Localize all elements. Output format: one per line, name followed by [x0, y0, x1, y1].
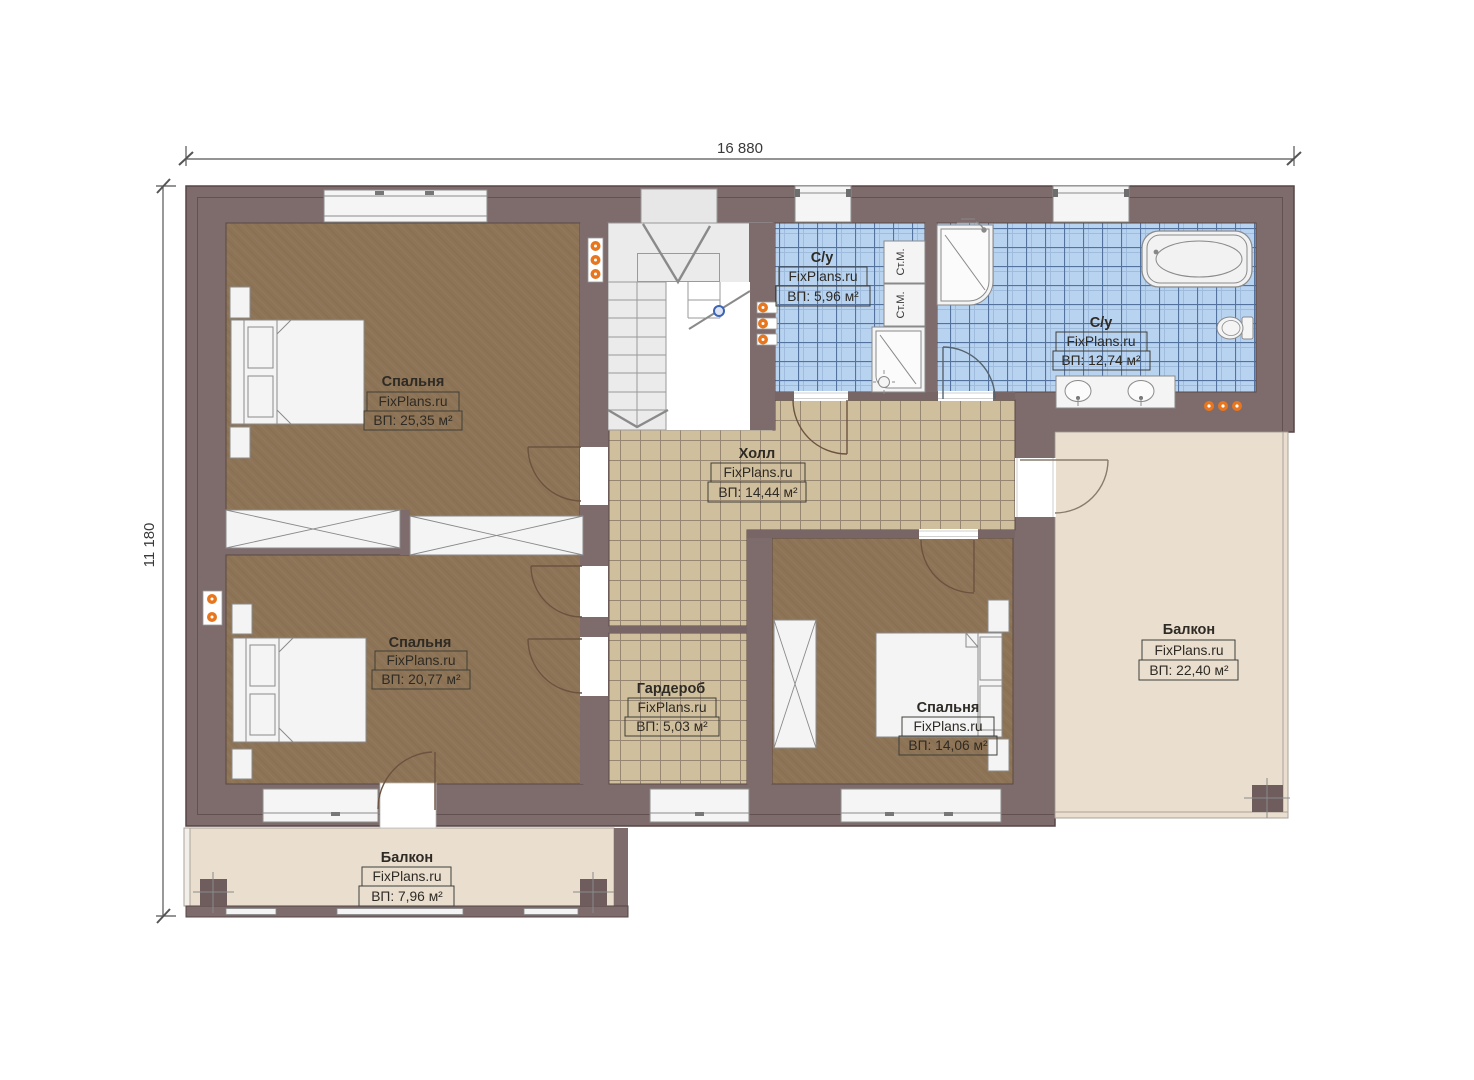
svg-text:ВП: 14,44 м²: ВП: 14,44 м² — [718, 485, 798, 500]
svg-text:С/у: С/у — [1090, 315, 1113, 331]
svg-text:FixPlans.ru: FixPlans.ru — [637, 700, 706, 715]
svg-text:FixPlans.ru: FixPlans.ru — [788, 269, 857, 284]
svg-text:Холл: Холл — [739, 446, 775, 462]
svg-text:ВП: 22,40 м²: ВП: 22,40 м² — [1149, 663, 1229, 678]
svg-text:11 180: 11 180 — [141, 523, 158, 568]
svg-text:FixPlans.ru: FixPlans.ru — [386, 653, 455, 668]
svg-text:FixPlans.ru: FixPlans.ru — [1066, 334, 1135, 349]
svg-text:ВП: 5,96 м²: ВП: 5,96 м² — [787, 289, 859, 304]
svg-text:Балкон: Балкон — [1163, 622, 1215, 638]
svg-text:Ст.М.: Ст.М. — [895, 291, 907, 318]
svg-text:FixPlans.ru: FixPlans.ru — [913, 719, 982, 734]
svg-text:ВП: 12,74 м²: ВП: 12,74 м² — [1061, 353, 1141, 368]
svg-text:FixPlans.ru: FixPlans.ru — [378, 394, 447, 409]
svg-text:Спальня: Спальня — [917, 700, 980, 716]
svg-text:ВП: 5,03 м²: ВП: 5,03 м² — [636, 719, 708, 734]
svg-text:Спальня: Спальня — [382, 374, 445, 390]
svg-text:FixPlans.ru: FixPlans.ru — [723, 465, 792, 480]
svg-text:ВП: 25,35 м²: ВП: 25,35 м² — [373, 413, 453, 428]
svg-text:FixPlans.ru: FixPlans.ru — [372, 869, 441, 884]
svg-text:ВП: 7,96 м²: ВП: 7,96 м² — [371, 889, 443, 904]
svg-text:Балкон: Балкон — [381, 850, 433, 866]
svg-text:ВП: 20,77 м²: ВП: 20,77 м² — [381, 672, 461, 687]
svg-text:Спальня: Спальня — [389, 635, 452, 651]
svg-text:FixPlans.ru: FixPlans.ru — [1154, 643, 1223, 658]
svg-text:Ст.М.: Ст.М. — [895, 248, 907, 275]
svg-text:ВП: 14,06 м²: ВП: 14,06 м² — [908, 738, 988, 753]
svg-text:16 880: 16 880 — [717, 140, 763, 157]
svg-text:С/у: С/у — [811, 250, 834, 266]
svg-text:Гардероб: Гардероб — [637, 681, 706, 697]
